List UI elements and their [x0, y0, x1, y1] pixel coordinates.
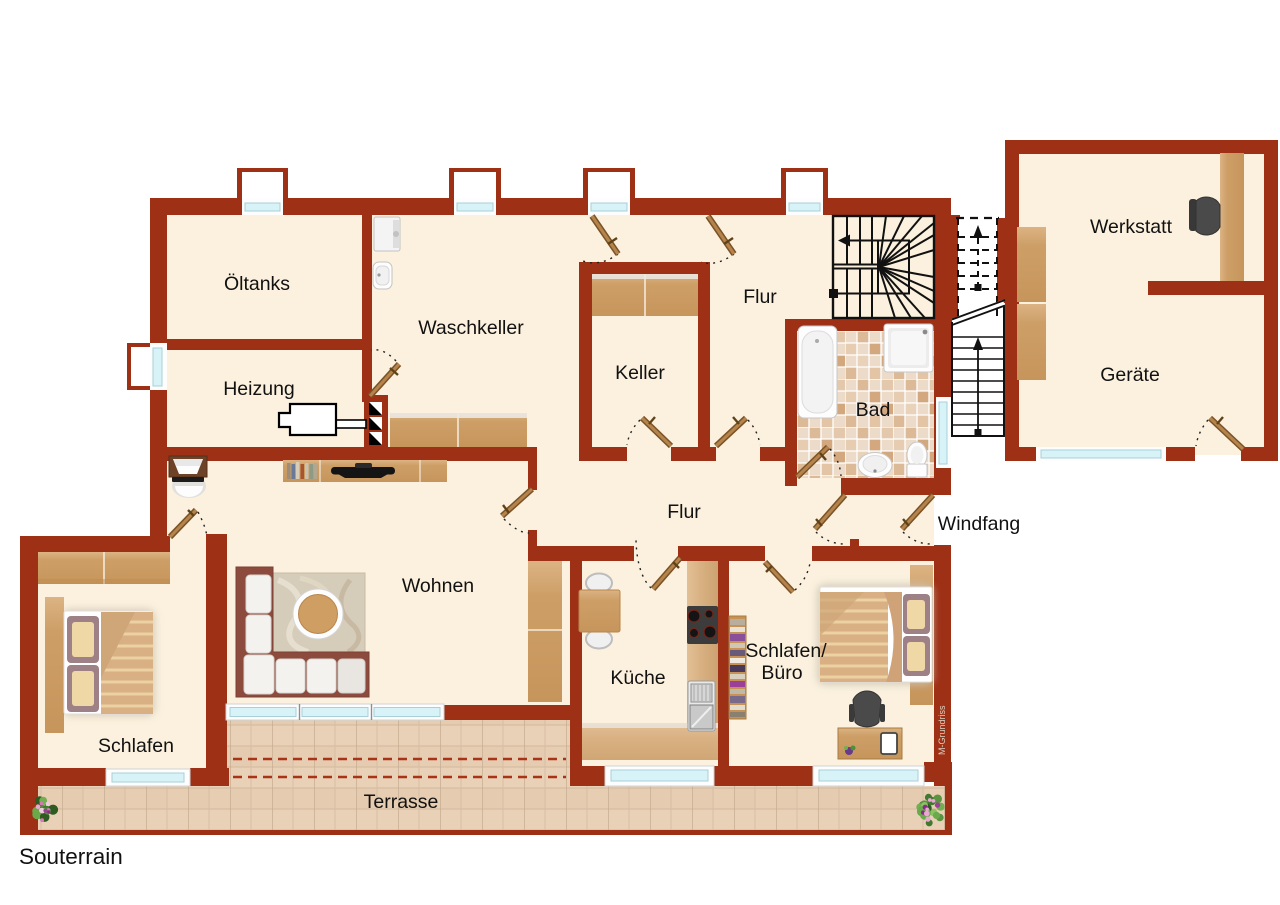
svg-text:Küche: Küche	[610, 667, 665, 689]
svg-text:Terrasse: Terrasse	[364, 791, 439, 813]
svg-text:Geräte: Geräte	[1100, 364, 1160, 386]
svg-text:Keller: Keller	[615, 362, 665, 384]
svg-text:Büro: Büro	[761, 662, 802, 684]
svg-text:M-Grundriss: M-Grundriss	[937, 705, 947, 755]
svg-text:Heizung: Heizung	[223, 378, 295, 400]
svg-text:Bad: Bad	[856, 399, 891, 421]
svg-text:Wohnen: Wohnen	[402, 575, 474, 597]
svg-text:Flur: Flur	[743, 286, 777, 308]
svg-text:Windfang: Windfang	[938, 513, 1020, 535]
svg-text:Werkstatt: Werkstatt	[1090, 216, 1173, 238]
svg-text:Souterrain: Souterrain	[19, 844, 123, 869]
svg-text:Schlafen: Schlafen	[98, 735, 174, 757]
svg-text:Waschkeller: Waschkeller	[418, 317, 524, 339]
svg-text:Öltanks: Öltanks	[224, 273, 290, 295]
svg-text:Flur: Flur	[667, 501, 701, 523]
svg-text:Schlafen/: Schlafen/	[745, 640, 827, 662]
